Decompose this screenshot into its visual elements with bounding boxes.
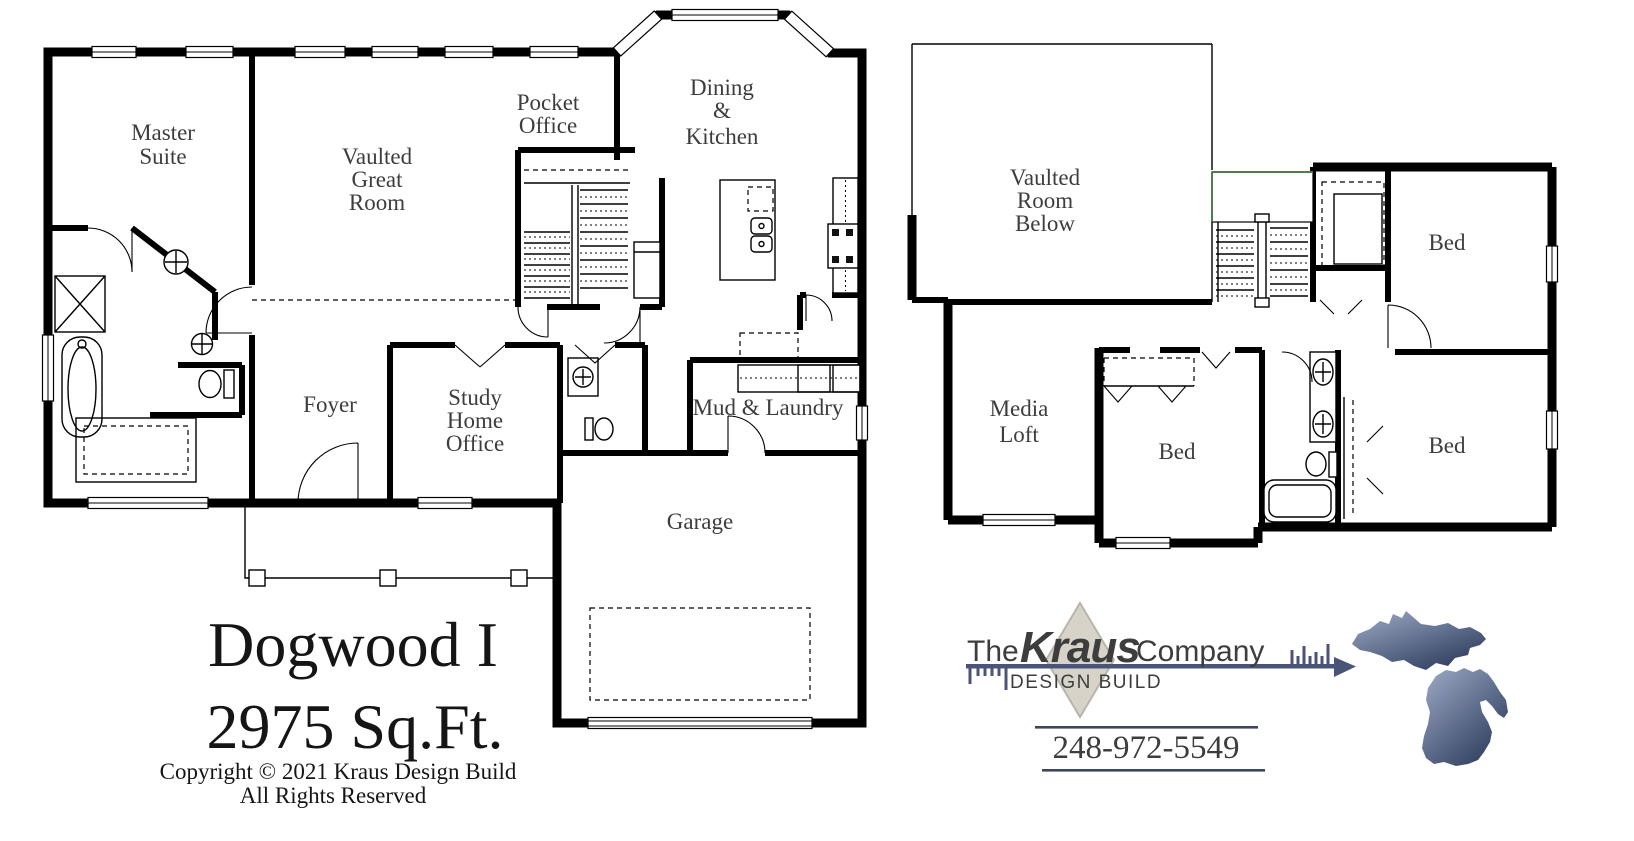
svg-text:Office: Office [446,431,504,456]
porch-column [511,570,527,586]
michigan-map-icon [1352,611,1508,766]
walkin-closet [84,426,188,474]
bar-ticks-icon [1292,644,1328,664]
room-label-mud-laundry: Mud & Laundry [693,395,844,420]
room-label-bed-center: Bed [1158,439,1196,464]
svg-text:Room: Room [1017,188,1073,213]
porch-column [380,570,396,586]
room-label-master-suite: Master [131,120,195,145]
title-block: Dogwood I 2975 Sq.Ft. Copyright © 2021 K… [160,609,517,808]
garage-parking-pad [590,608,810,700]
room-label-garage: Garage [667,509,733,534]
phone-block: 248-972-5549 [1035,726,1265,772]
first-floor-staircase [524,170,660,307]
svg-text:Kitchen: Kitchen [686,124,759,149]
powder-room-fixtures [568,358,613,440]
room-label-foyer: Foyer [303,392,357,417]
logo-tagline: DESIGN BUILD [1010,672,1162,693]
kitchen-range-counter [828,178,858,293]
floor-plan-sheet: Master Suite Vaulted Great Room Pocket O… [0,0,1634,841]
room-label-bed-upper-right: Bed [1428,230,1466,255]
copyright-line: Copyright © 2021 Kraus Design Build [160,759,517,784]
porch-column [249,570,265,586]
room-label-bed-lower-right: Bed [1428,433,1466,458]
logo-suffix: Company [1136,635,1264,668]
room-label-vaulted-below: Vaulted [1010,165,1081,190]
rights-line: All Rights Reserved [240,783,427,808]
logo-prefix: The [967,635,1019,668]
room-label-great-room: Vaulted [342,144,413,169]
svg-text:&: & [713,98,731,123]
first-floor-labels: Master Suite Vaulted Great Room Pocket O… [131,75,844,534]
svg-text:Great: Great [351,167,403,192]
bath-toilet-icon [1306,452,1326,476]
svg-text:Room: Room [349,190,405,215]
logo-brand: Kraus [1020,623,1140,672]
bay-window [613,10,833,57]
phone-number: 248-972-5549 [1053,730,1240,766]
svg-text:Office: Office [519,113,577,138]
room-label-dining-kitchen: Dining [690,75,754,100]
room-label-pocket-office: Pocket [517,90,580,115]
front-porch [245,503,557,586]
second-floor-doors [1104,300,1431,494]
svg-text:Below: Below [1015,211,1075,236]
stair-cabinet [634,242,660,298]
kraus-logo: The Kraus Company DESIGN BUILD 248-972-5… [966,603,1356,772]
svg-text:Home: Home [447,408,503,433]
plan-area-title: 2975 Sq.Ft. [207,691,504,762]
second-floor-staircase [1212,172,1313,307]
powder-toilet-icon [595,418,613,440]
second-floor-bath-fixtures [1264,352,1337,522]
plan-name-title: Dogwood I [208,609,498,680]
second-floor-plan: Vaulted Room Below Bed Media Loft Bed Be… [912,44,1558,549]
plan-drawing: Master Suite Vaulted Great Room Pocket O… [0,0,1634,841]
bath-tub-icon [1264,480,1336,522]
room-label-media-loft: Media [990,396,1049,421]
room-label-study: Study [448,385,502,410]
garage-door [588,718,812,729]
kitchen-island [720,180,775,280]
svg-text:Suite: Suite [139,144,186,169]
svg-text:Loft: Loft [999,422,1039,447]
master-toilet-icon [199,371,221,398]
ruler-ticks-icon [970,668,1006,690]
